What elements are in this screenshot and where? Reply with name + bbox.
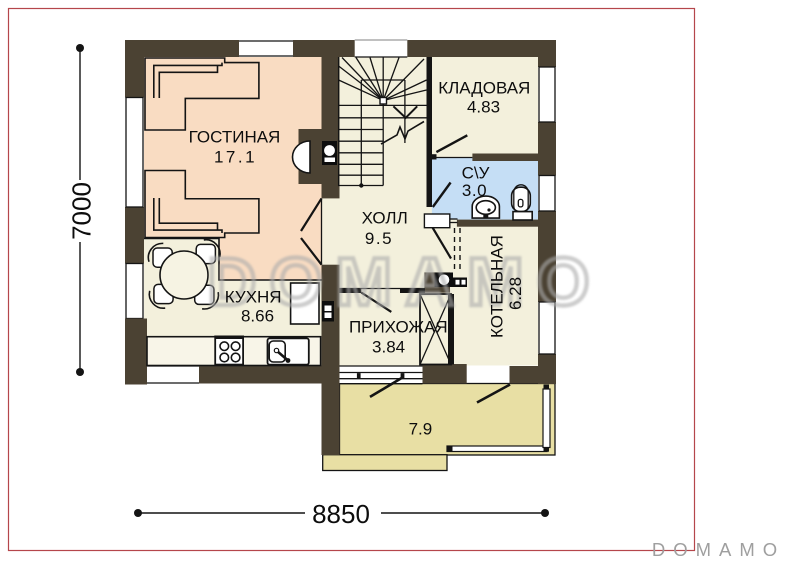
svg-text:8850: 8850 <box>312 499 370 529</box>
svg-text:КЛАДОВАЯ: КЛАДОВАЯ <box>438 79 530 98</box>
svg-text:С\У: С\У <box>462 164 490 183</box>
svg-text:8.66: 8.66 <box>241 307 274 326</box>
svg-text:ПРИХОЖАЯ: ПРИХОЖАЯ <box>349 318 448 337</box>
svg-text:ГОСТИНАЯ: ГОСТИНАЯ <box>189 128 281 147</box>
svg-text:7000: 7000 <box>67 182 97 240</box>
svg-text:17.1: 17.1 <box>214 148 257 167</box>
svg-text:DOMAMO: DOMAMO <box>652 539 785 560</box>
svg-text:КУХНЯ: КУХНЯ <box>225 288 282 307</box>
svg-text:7.9: 7.9 <box>409 420 433 439</box>
svg-text:9.5: 9.5 <box>365 229 393 248</box>
svg-text:4.83: 4.83 <box>467 98 500 117</box>
svg-text:6.28: 6.28 <box>506 277 525 310</box>
svg-text:КОТЕЛЬНАЯ: КОТЕЛЬНАЯ <box>488 235 507 338</box>
svg-text:ХОЛЛ: ХОЛЛ <box>362 209 408 228</box>
svg-text:3.84: 3.84 <box>372 338 405 357</box>
svg-text:3.0: 3.0 <box>462 181 487 200</box>
